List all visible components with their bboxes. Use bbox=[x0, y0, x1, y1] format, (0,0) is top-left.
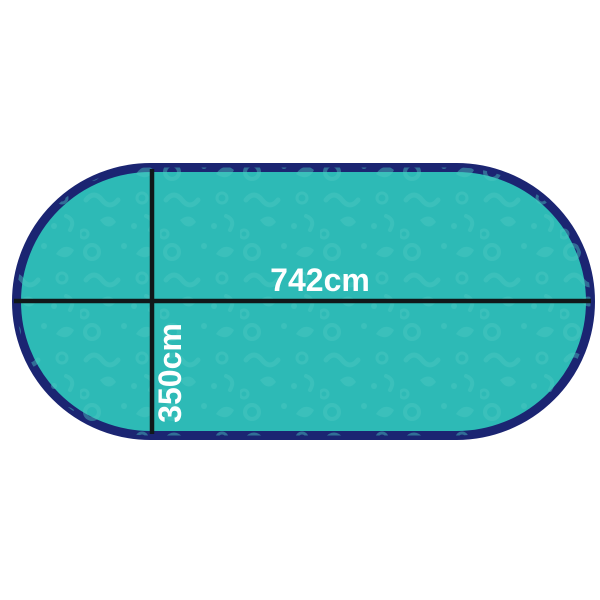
diagram-canvas: 742cm 350cm bbox=[0, 0, 600, 600]
oval-cover-dimension-diagram: 742cm 350cm bbox=[0, 0, 600, 600]
height-label: 350cm bbox=[152, 323, 188, 423]
width-label: 742cm bbox=[270, 262, 370, 298]
